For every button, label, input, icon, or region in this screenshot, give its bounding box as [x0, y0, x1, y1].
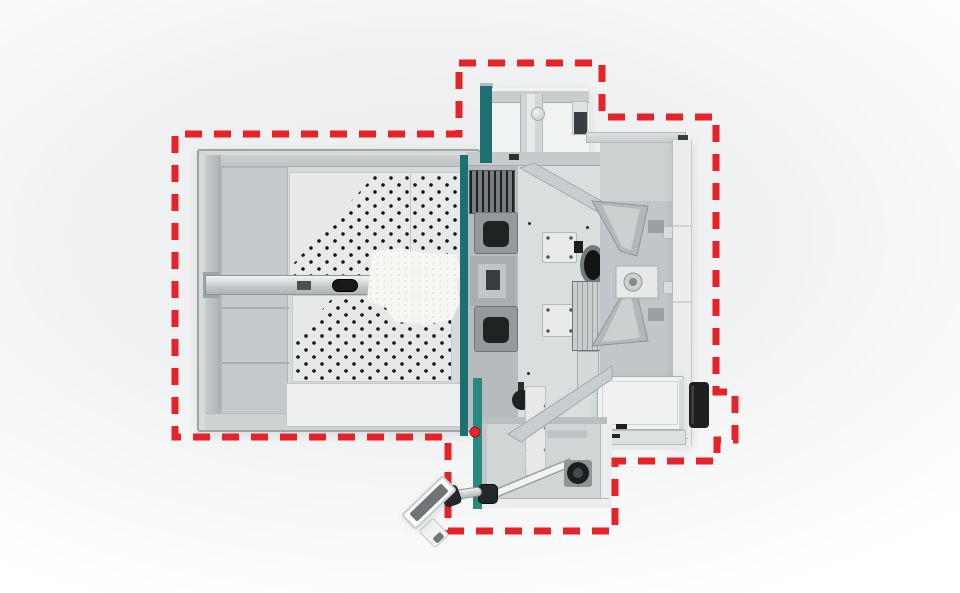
- monitor-screen: [409, 483, 448, 521]
- clamp-jaw: [483, 317, 509, 343]
- holes-strip: [525, 386, 546, 476]
- shelf-vent: [612, 434, 620, 438]
- bottom-extension-bottom-wall: [481, 498, 609, 508]
- funnel-mount: [648, 308, 664, 321]
- main-cabin-block: [197, 149, 480, 432]
- wall-seam: [673, 225, 693, 227]
- fixture-latch: [574, 241, 583, 253]
- clamp-station-1: [474, 212, 518, 254]
- arm-handle: [297, 281, 311, 290]
- fixture-plate-1: [542, 232, 577, 263]
- clamp-jaw: [483, 221, 509, 247]
- middle-top-rail: [466, 152, 612, 166]
- actuator-tail: [577, 351, 599, 389]
- side-protrusion: [689, 382, 709, 428]
- arm-grip: [332, 279, 358, 292]
- machine-footprint-diagram: [0, 0, 960, 593]
- rack-mid-dark: [486, 270, 500, 290]
- bottom-extension-right-wall: [600, 424, 612, 508]
- middle-rail-part: [509, 154, 519, 160]
- clamp-station-2: [474, 306, 518, 352]
- protrusion-stripe: [691, 386, 694, 424]
- cabinet-vent: [616, 424, 627, 429]
- funnel-mount: [648, 220, 664, 233]
- wall-seam: [673, 301, 693, 303]
- cabin-top-wall: [205, 155, 476, 167]
- ribbed-actuator: [572, 281, 602, 351]
- right-top-wall: [586, 132, 686, 143]
- feeder-sphere: [531, 107, 545, 121]
- cabinet-panel-line: [602, 381, 678, 425]
- cabin-bottom-panel: [286, 383, 479, 427]
- wall-notch: [663, 226, 673, 239]
- chamber-divider: [222, 307, 289, 309]
- bracket-slot: [432, 532, 444, 544]
- floor-part: [547, 430, 587, 438]
- tool-rack-slots: [469, 170, 515, 214]
- cabinet-edge: [679, 379, 684, 429]
- rack-mid-band: [470, 256, 516, 306]
- electrical-cabinet: [597, 376, 684, 430]
- right-interior-shade: [600, 143, 674, 201]
- floor-screw: [528, 222, 531, 225]
- top-extension-dark-cap: [574, 112, 587, 134]
- floor-screw: [586, 226, 589, 229]
- floor-screw: [527, 372, 530, 375]
- wall-notch: [663, 281, 673, 294]
- cabinet-shelf: [599, 430, 686, 445]
- chamber-divider: [222, 362, 289, 364]
